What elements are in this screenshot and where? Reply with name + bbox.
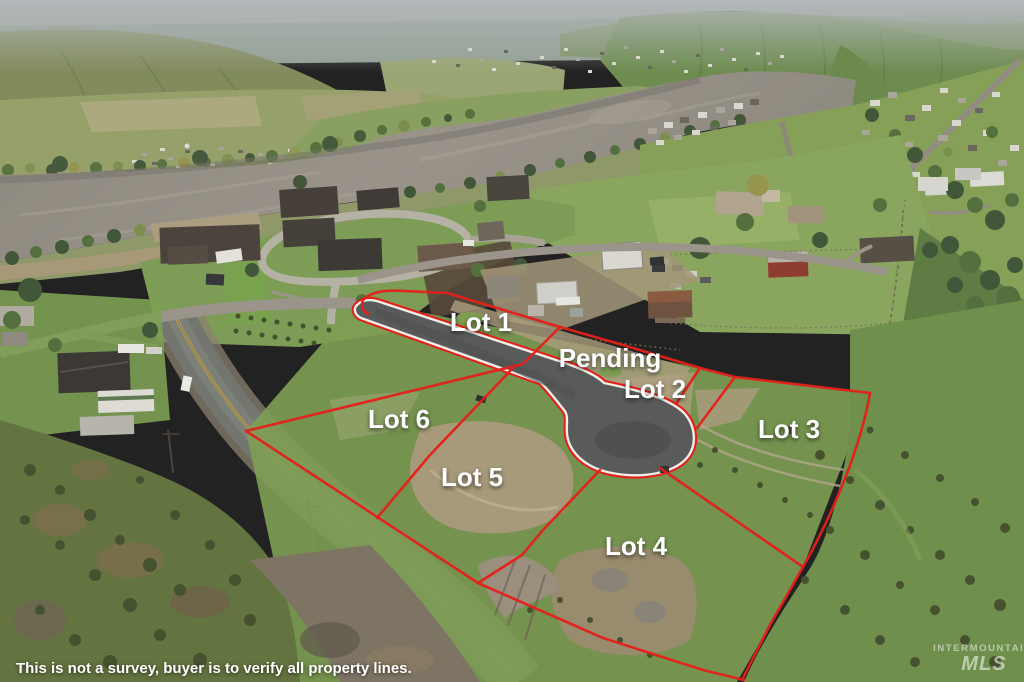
disclaimer-text: This is not a survey, buyer is to verify… bbox=[16, 660, 412, 677]
cul-de-sac bbox=[595, 421, 671, 459]
lot-2-label: Lot 2 bbox=[624, 374, 686, 404]
aerial-photo-canvas: Lot 1 Pending Lot 2 Lot 3 Lot 4 Lot 5 Lo… bbox=[0, 0, 1024, 682]
pending-label: Pending bbox=[559, 343, 662, 373]
watermark-line2: MLS bbox=[961, 653, 1006, 675]
lot-4-label: Lot 4 bbox=[605, 531, 668, 561]
lot-1-label: Lot 1 bbox=[450, 307, 512, 337]
lot-5-label: Lot 5 bbox=[441, 462, 503, 492]
aerial-photo: Lot 1 Pending Lot 2 Lot 3 Lot 4 Lot 5 Lo… bbox=[0, 0, 1024, 682]
lot-6-label: Lot 6 bbox=[368, 404, 430, 434]
lot-3-label: Lot 3 bbox=[758, 414, 820, 444]
